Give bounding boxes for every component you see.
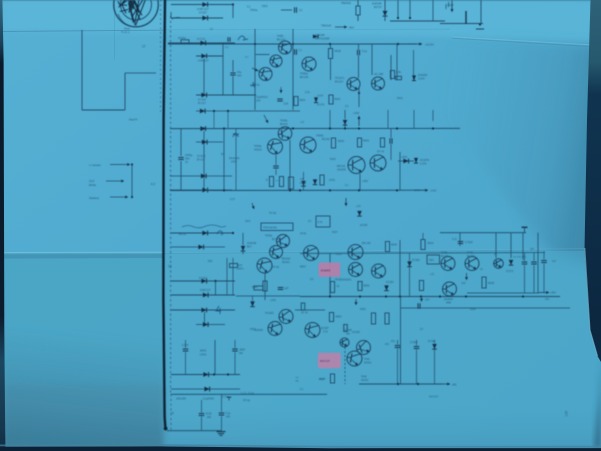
svg-text:R834: R834 [428, 242, 435, 245]
svg-text:R801: R801 [262, 5, 268, 8]
svg-text:BC140: BC140 [272, 238, 280, 241]
svg-text:MA7137: MA7137 [320, 359, 331, 363]
svg-text:BA9s: BA9s [89, 183, 96, 187]
svg-text:TF65a: TF65a [254, 144, 262, 148]
svg-text:SY320/: SY320/ [197, 154, 206, 158]
svg-text:150n/250: 150n/250 [176, 398, 187, 401]
svg-text:2N3055: 2N3055 [337, 169, 346, 172]
svg-text:TF80a: TF80a [300, 72, 308, 76]
svg-text:4μ7: 4μ7 [552, 260, 557, 263]
svg-text:18: 18 [168, 265, 172, 269]
svg-text:+41,5V: +41,5V [425, 43, 434, 47]
svg-text:BZY/Gr2095: BZY/Gr2095 [315, 37, 330, 41]
svg-text:BC140: BC140 [322, 138, 330, 141]
svg-text:+0,6V: +0,6V [317, 95, 324, 98]
svg-text:1N4148: 1N4148 [247, 241, 257, 245]
svg-text:R853: R853 [250, 328, 256, 331]
svg-text:AC187: AC187 [360, 224, 368, 227]
svg-text:12V: 12V [462, 282, 467, 285]
svg-text:12V: 12V [425, 299, 430, 302]
svg-text:+12: +12 [430, 273, 435, 276]
svg-text:+14V: +14V [430, 189, 437, 193]
svg-text:220V: 220V [231, 161, 237, 164]
svg-text:AC: AC [308, 220, 312, 223]
svg-text:Tr-Gr 1: Tr-Gr 1 [121, 30, 130, 34]
svg-text:50Hz: 50Hz [245, 220, 251, 223]
svg-text:AD161: AD161 [361, 379, 369, 382]
svg-text:L.C.L. 9 mg: L.C.L. 9 mg [241, 392, 255, 395]
svg-text:2×BY127: 2×BY127 [200, 289, 211, 292]
svg-text:R850: R850 [336, 316, 343, 319]
svg-text:NF1: NF1 [429, 258, 434, 262]
svg-text:BC170: BC170 [277, 38, 286, 42]
svg-text:3,15V: 3,15V [418, 77, 425, 81]
svg-text:R822: R822 [397, 97, 403, 100]
svg-text:TBA625: TBA625 [341, 1, 351, 5]
svg-text:40V: 40V [385, 343, 390, 346]
svg-text:AD161: AD161 [254, 148, 262, 152]
svg-text:5A: 5A [221, 152, 224, 156]
svg-text:35V: 35V [237, 74, 242, 78]
svg-text:TF65 AD161: TF65 AD161 [263, 226, 278, 229]
svg-text:Netz: Netz [124, 27, 130, 31]
svg-text:AC 188: AC 188 [374, 72, 383, 76]
svg-text:SY320: SY320 [199, 276, 207, 280]
svg-text:+ Lampe: + Lampe [89, 163, 101, 167]
svg-text:Netztrafo: Netztrafo [229, 156, 240, 160]
svg-text:TF80: TF80 [277, 34, 284, 38]
svg-text:BD 142: BD 142 [362, 241, 371, 245]
svg-text:AF: AF [494, 253, 498, 256]
svg-text:+40V: +40V [447, 3, 454, 7]
svg-text:SY170: SY170 [197, 37, 205, 41]
svg-text:R837: R837 [332, 231, 338, 234]
svg-text:R818: R818 [335, 49, 342, 53]
svg-text:BY127: BY127 [198, 101, 206, 105]
svg-text:TBA120: TBA120 [321, 24, 332, 28]
svg-text:2N3055: 2N3055 [418, 73, 428, 77]
svg-text:REP.: REP. [319, 377, 326, 381]
svg-text:35V: 35V [185, 157, 190, 161]
svg-text:30W: 30W [446, 302, 452, 305]
svg-text:TF1663: TF1663 [265, 312, 274, 315]
svg-text:LTAG: LTAG [200, 353, 206, 357]
svg-text:SY320: SY320 [198, 98, 206, 102]
svg-text:+B: +B [296, 377, 299, 379]
svg-text:25V: 25V [530, 248, 535, 251]
svg-text:TF65b: TF65b [280, 119, 288, 123]
svg-text:BC213: BC213 [335, 80, 343, 84]
svg-text:1W: 1W [300, 177, 304, 181]
svg-text:0,1: 0,1 [299, 9, 303, 12]
svg-text:+A53: +A53 [401, 156, 408, 159]
svg-text:BC140: BC140 [300, 75, 309, 79]
svg-text:+35V: +35V [550, 292, 556, 295]
svg-text:3,3k: 3,3k [284, 103, 289, 106]
svg-text:+2V: +2V [356, 204, 361, 208]
svg-text:1N34a: 1N34a [178, 36, 186, 40]
svg-text:4,7k: 4,7k [323, 331, 328, 334]
svg-text:R836: R836 [391, 244, 398, 247]
svg-text:R816: R816 [300, 99, 306, 102]
svg-text:25 mg: 25 mg [243, 399, 250, 402]
svg-text:AD161: AD161 [282, 261, 290, 264]
svg-text:135: 135 [565, 411, 569, 417]
svg-text:+1V: +1V [300, 121, 305, 124]
svg-text:AC117K: AC117K [250, 83, 260, 87]
svg-text:R816: R816 [262, 96, 268, 99]
svg-text:1000μ: 1000μ [185, 153, 193, 157]
svg-text:4,7k: 4,7k [318, 221, 323, 224]
svg-text:NetzTr: NetzTr [129, 118, 138, 122]
svg-text:BY127: BY127 [197, 158, 205, 162]
svg-text:HA7137: HA7137 [429, 395, 439, 399]
svg-text:BZY: BZY [247, 246, 252, 249]
svg-text:AD161: AD161 [364, 362, 372, 365]
svg-text:R820: R820 [363, 140, 370, 143]
svg-text:0,1μ: 0,1μ [362, 49, 368, 53]
svg-text:Skalenl.: Skalenl. [89, 196, 100, 200]
svg-text:TF80b: TF80b [316, 134, 324, 138]
svg-text:600: 600 [207, 416, 212, 419]
svg-text:TF1663/AD161: TF1663/AD161 [335, 279, 352, 282]
svg-text:R849: R849 [488, 282, 495, 285]
svg-text:R840: R840 [360, 308, 366, 311]
svg-text:SY: SY [420, 328, 424, 331]
svg-text:35V: 35V [545, 298, 550, 301]
svg-text:50μ: 50μ [237, 70, 242, 74]
svg-text:BD142: BD142 [337, 164, 346, 168]
svg-text:R: R [266, 179, 268, 182]
svg-text:SY170: SY170 [317, 104, 325, 107]
svg-text:R845: R845 [252, 286, 258, 289]
svg-text:TF 65: TF 65 [269, 211, 277, 215]
svg-text:SY170: SY170 [506, 270, 514, 273]
svg-text:BD142: BD142 [280, 123, 288, 126]
svg-text:BC173: BC173 [467, 255, 475, 258]
svg-text:0,15μF: 0,15μF [465, 241, 473, 244]
svg-text:6,3V: 6,3V [230, 198, 235, 201]
svg-text:TF 78: TF 78 [377, 150, 384, 154]
svg-text:R819: R819 [335, 98, 341, 101]
svg-text:19: 19 [171, 411, 175, 415]
svg-text:R848: R848 [470, 308, 476, 311]
svg-text:SY320: SY320 [386, 281, 394, 284]
svg-text:0,15V: 0,15V [420, 163, 427, 166]
svg-text:40V: 40V [349, 26, 354, 30]
svg-text:1N4148: 1N4148 [372, 2, 382, 6]
svg-text:MON.: MON. [200, 349, 207, 353]
svg-text:SY: SY [210, 28, 214, 31]
svg-text:TF1371: TF1371 [335, 76, 345, 80]
svg-text:2N3055: 2N3055 [321, 269, 331, 273]
svg-text:TF76: TF76 [300, 232, 307, 236]
svg-text:BC173: BC173 [441, 255, 449, 258]
svg-text:25V: 25V [256, 99, 261, 103]
svg-text:BZY97: BZY97 [374, 5, 382, 9]
svg-text:250: 250 [226, 416, 231, 419]
svg-text:R830: R830 [338, 140, 345, 143]
svg-text:+14V: +14V [270, 299, 276, 302]
svg-text:47μ: 47μ [391, 340, 396, 343]
svg-text:TF80a: TF80a [250, 9, 258, 12]
svg-text:R838: R838 [336, 253, 342, 256]
svg-text:2,2k: 2,2k [305, 91, 310, 94]
svg-text:17: 17 [142, 45, 146, 49]
svg-text:+B1: +B1 [452, 384, 457, 387]
svg-text:(4): (4) [296, 381, 299, 383]
svg-text:R827: R827 [300, 266, 307, 269]
svg-text:B40: B40 [208, 260, 213, 263]
svg-text:6,3: 6,3 [151, 182, 155, 186]
svg-text:SY327: SY327 [199, 11, 207, 15]
svg-text:R841: R841 [364, 285, 371, 288]
svg-text:TF 76: TF 76 [301, 312, 308, 315]
svg-text:+39V: +39V [362, 180, 368, 183]
svg-text:1μF: 1μF [284, 287, 289, 290]
svg-text:+33V: +33V [353, 111, 360, 115]
svg-text:0,1μF/250: 0,1μF/250 [203, 398, 214, 401]
svg-text:A750: A750 [329, 179, 335, 182]
svg-text:R829: R829 [330, 158, 336, 161]
svg-text:R825: R825 [300, 182, 307, 185]
svg-text:TF 65: TF 65 [272, 265, 279, 269]
svg-text:TF65c: TF65c [265, 234, 273, 238]
svg-text:SY360: SY360 [412, 259, 420, 262]
svg-text:2×BY127: 2×BY127 [197, 7, 209, 11]
svg-text:5W: 5W [239, 352, 243, 355]
svg-text:0,15: 0,15 [452, 238, 457, 241]
svg-text:220V~: 220V~ [237, 268, 245, 271]
svg-text:6,8k: 6,8k [396, 70, 402, 74]
svg-text:1N 829: 1N 829 [352, 331, 360, 334]
